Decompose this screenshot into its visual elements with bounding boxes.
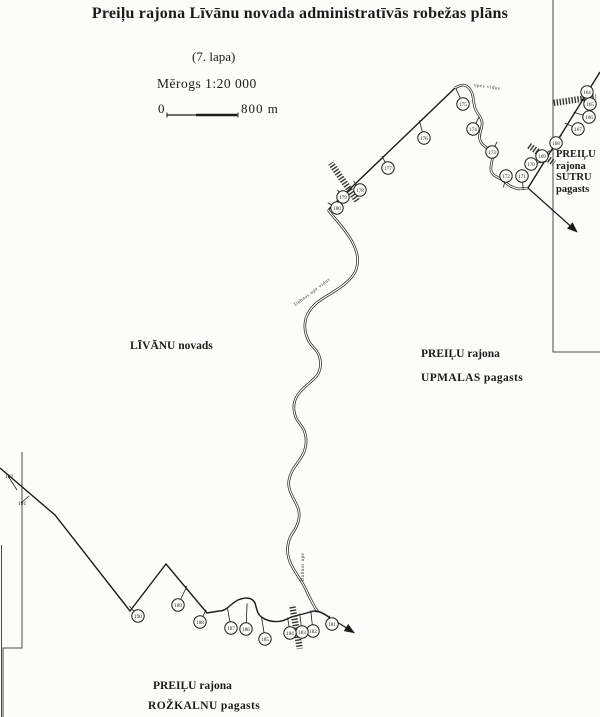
river-label-1: Dubnas upe [301, 553, 306, 582]
svg-text:177: 177 [384, 166, 392, 172]
region-label-rozkalnu-line2: ROŽKALNU pagasts [148, 700, 260, 712]
sheet-number: (7. lapa) [192, 49, 235, 65]
boundary-point-192: 192 [5, 474, 17, 490]
svg-text:178: 178 [356, 188, 364, 194]
svg-text:166: 166 [585, 115, 593, 121]
svg-text:188: 188 [196, 620, 204, 626]
boundary-point-164: 164 [581, 86, 593, 98]
boundary-point-191: 191 [18, 496, 29, 507]
boundary-arrow-southeast [337, 622, 353, 632]
frame-line-bottom-left [3, 452, 22, 717]
svg-text:164: 164 [583, 90, 591, 96]
svg-text:170: 170 [527, 162, 535, 168]
svg-text:175: 175 [459, 102, 467, 108]
river-dubna-inner [288, 210, 358, 612]
river-dubna [288, 210, 358, 612]
boundary-point-178: 178 [354, 181, 367, 196]
scale-bar [167, 113, 238, 118]
scalebar-end-label: 800 m [241, 101, 279, 117]
boundary-point-181: 181 [326, 616, 338, 631]
boundary-point-176: 176 [418, 121, 430, 145]
boundary-point-165: 165 [581, 98, 596, 110]
boundary-point-layer: 1641651661671681691701711721731741751761… [129, 86, 596, 645]
svg-text:173: 173 [488, 150, 496, 156]
svg-text:183: 183 [298, 630, 306, 636]
page-title: Preiļu rajona Līvānu novada administratī… [0, 5, 600, 23]
boundary-point-179: 179 [337, 190, 349, 203]
boundary-point-168: 168 [550, 135, 562, 149]
map-sheet: Dubnas upe vidusDubnas upeupes vidus 164… [0, 0, 600, 717]
region-label-sutru-line1: PREIĻU [556, 149, 596, 161]
region-label-upmalas-line1: PREIĻU rajona [421, 348, 500, 360]
river-label-2: upes vidus [474, 83, 501, 92]
boundary-point-175: 175 [456, 89, 469, 110]
svg-text:187: 187 [227, 626, 235, 632]
svg-text:176: 176 [420, 136, 428, 142]
svg-text:182: 182 [309, 629, 317, 635]
svg-text:174: 174 [469, 127, 477, 133]
svg-text:186: 186 [242, 627, 250, 633]
svg-text:169: 169 [538, 154, 546, 160]
boundary-point-188: 188 [194, 610, 206, 628]
svg-text:184: 184 [286, 631, 294, 637]
svg-text:165: 165 [586, 102, 594, 108]
boundary-point-177: 177 [382, 156, 394, 174]
boundary-point-167: 167 [565, 123, 584, 135]
svg-text:179: 179 [339, 195, 347, 201]
boundary-point-173: 173 [486, 142, 498, 158]
boundary-point-182: 182 [307, 611, 319, 638]
svg-text:168: 168 [552, 141, 560, 147]
svg-text:172: 172 [502, 174, 510, 180]
region-label-livanu-novads: LĪVĀNU novads [130, 340, 213, 352]
svg-text:171: 171 [518, 174, 526, 180]
svg-text:189: 189 [174, 603, 182, 609]
region-label-sutru-line3: SUTRU [556, 172, 596, 184]
boundary-point-174: 174 [467, 117, 479, 135]
svg-text:192: 192 [5, 474, 14, 480]
region-label-rozkalnu-line1: PREIĻU rajona [153, 680, 232, 692]
region-label-sutru-line4: pagasts [556, 184, 596, 196]
svg-text:180: 180 [333, 206, 341, 212]
boundary-point-186: 186 [240, 604, 252, 636]
boundary-point-189: 189 [172, 586, 187, 611]
svg-text:167: 167 [574, 127, 582, 133]
svg-text:181: 181 [328, 622, 336, 628]
boundary-point-171: 171 [516, 170, 528, 190]
svg-text:190: 190 [134, 614, 142, 620]
region-label-upmalas-line2: UPMALAS pagasts [421, 372, 523, 384]
svg-text:185: 185 [261, 637, 269, 643]
scale-label: Mērogs 1:20 000 [157, 76, 257, 92]
river-label-0: Dubnas upe vidus [294, 277, 332, 307]
map-canvas: Dubnas upe vidusDubnas upeupes vidus 164… [0, 0, 600, 717]
svg-text:191: 191 [18, 501, 27, 507]
region-label-sutru: PREIĻU rajona SUTRU pagasts [556, 149, 596, 195]
region-label-sutru-line2: rajona [556, 161, 596, 173]
scalebar-start-label: 0 [158, 101, 165, 117]
boundary-point-185: 185 [259, 618, 271, 646]
boundary-point-187: 187 [225, 609, 237, 635]
river-label-layer: Dubnas upe vidusDubnas upeupes vidus [294, 83, 501, 581]
boundary-point-166: 166 [574, 111, 596, 123]
boundary-point-190: 190 [129, 606, 144, 622]
